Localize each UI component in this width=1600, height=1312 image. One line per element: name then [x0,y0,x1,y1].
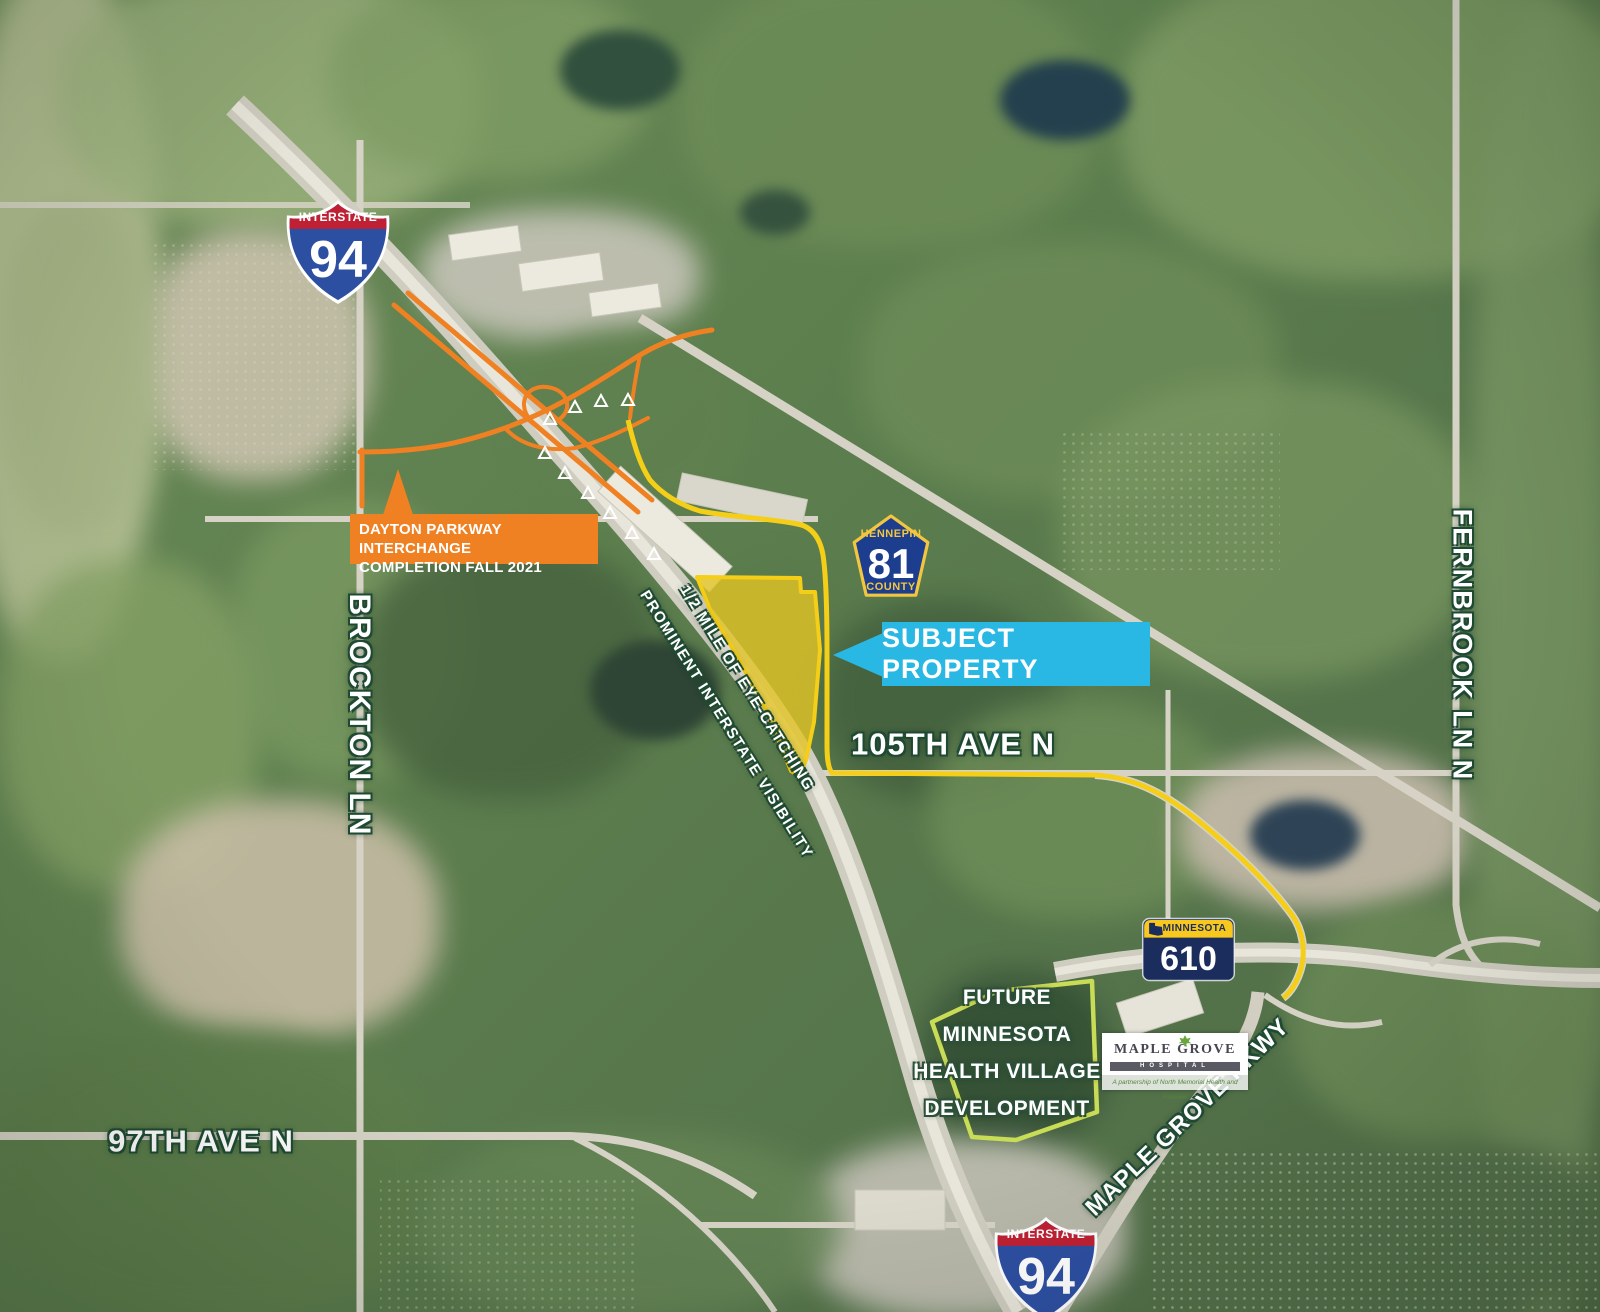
state-name-text: MINNESOTA [1141,923,1236,934]
interchange-callout-pointer [383,469,413,515]
health-village-line4: DEVELOPMENT [857,1097,1157,1121]
hospital-logo-card: MAPLE GROVE HOSPITAL [1102,1033,1248,1075]
label-brockton-ln: BROCKTON LN [344,593,374,836]
interstate-number: 94 [285,230,391,290]
interstate-band-text: INTERSTATE [285,210,391,224]
subject-property-arrow [833,633,883,677]
map-graphics-svg [0,0,1600,1312]
county-word-text: COUNTY [851,581,931,593]
interstate-band-text: INTERSTATE [993,1227,1099,1241]
label-fernbrook-ln: FERNBROOK LN N [1449,509,1476,782]
subject-property-parcel [697,577,820,776]
interstate-94-shield-bottom: INTERSTATE 94 [993,1214,1099,1312]
maple-leaf-icon [1178,1035,1192,1047]
health-village-line1: FUTURE [857,986,1157,1010]
state-route-number: 610 [1141,940,1236,979]
aerial-map: DAYTON PARKWAY INTERCHANGE COMPLETION FA… [0,0,1600,1312]
interstate-number: 94 [993,1247,1099,1307]
label-105th-ave: 105TH AVE N [851,729,1055,760]
minnesota-610-shield: MINNESOTA 610 [1141,917,1236,982]
interchange-callout-line2: COMPLETION FALL 2021 [359,558,598,577]
interchange-callout-line1: DAYTON PARKWAY INTERCHANGE [359,520,598,558]
label-97th-ave: 97TH AVE N [108,1126,294,1157]
hospital-word-bar: HOSPITAL [1110,1062,1240,1071]
interstate-94-shield-top: INTERSTATE 94 [285,197,391,307]
county-name-text: HENNEPIN [851,528,931,540]
subject-property-callout: SUBJECT PROPERTY [882,622,1150,686]
subject-property-label: SUBJECT PROPERTY [882,623,1150,685]
maple-grove-hospital-logo: MAPLE GROVE HOSPITAL A partnership of No… [1102,1033,1248,1090]
hospital-name: MAPLE GROVE [1102,1033,1248,1058]
freeways [235,105,1600,1312]
hospital-tagline: A partnership of North Memorial Health a… [1102,1075,1248,1090]
hennepin-county-81-shield: HENNEPIN 81 COUNTY [851,512,931,600]
interchange-callout: DAYTON PARKWAY INTERCHANGE COMPLETION FA… [350,514,598,564]
